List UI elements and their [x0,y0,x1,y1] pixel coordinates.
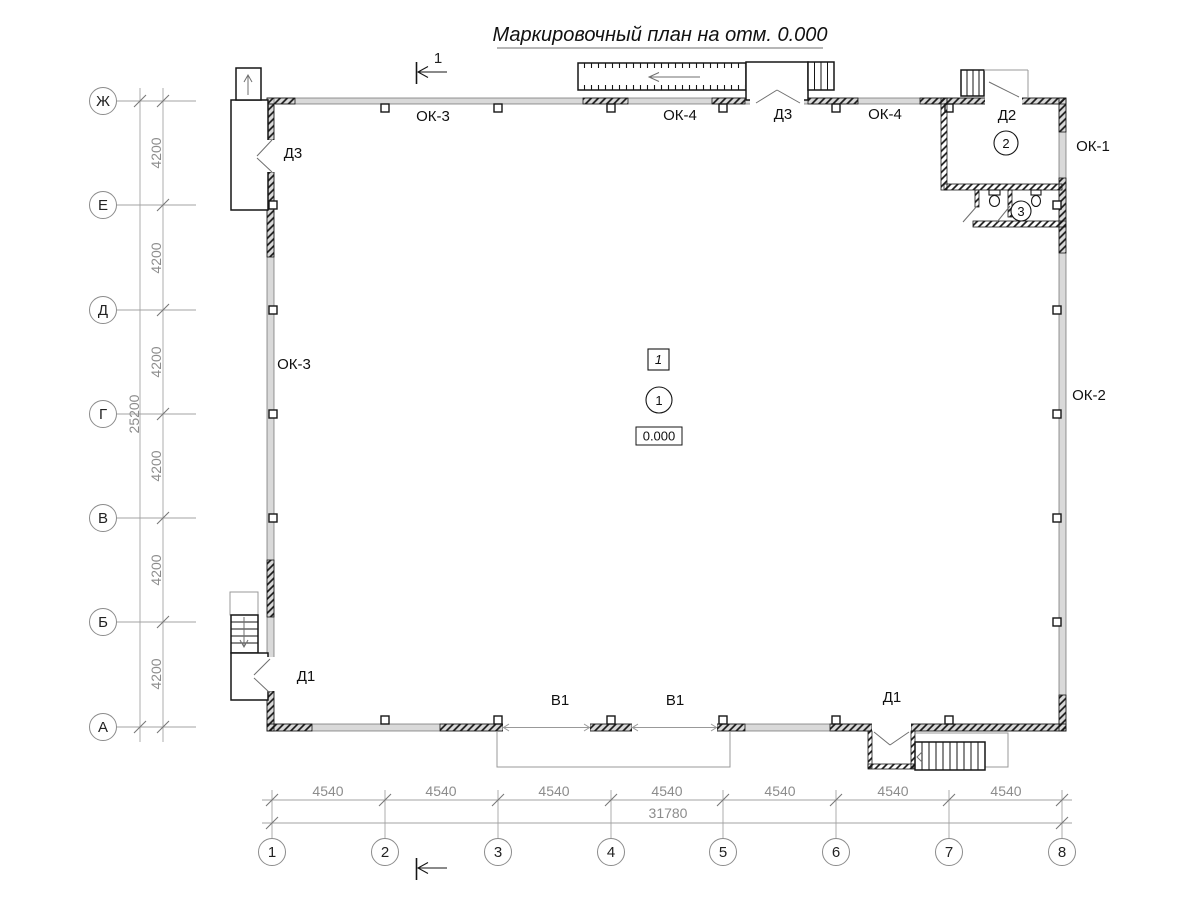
door-label-d3-top: Д3 [774,106,793,123]
element-labels: ОК-3 ОК-4 Д3 ОК-4 Д2 ОК-1 ОК-2 ОК-3 Д3 Д… [277,106,1110,709]
window-label-ok3-left: ОК-3 [277,356,311,373]
dim-col-segment: 4540 [764,783,795,799]
wall-hatched-segments [267,98,1066,731]
section-mark-top: 1 [417,50,448,84]
loading-dock [578,63,746,90]
dim-col-total: 31780 [649,805,688,821]
axis-col-label: 8 [1058,844,1066,861]
door-label-d2: Д2 [998,107,1017,124]
floor-plan-drawing: Маркировочный план на отм. 0.000 Ж Е Д Г… [0,0,1200,900]
drawing-title: Маркировочный план на отм. 0.000 [492,24,827,48]
room-number-sanitary: 3 [1017,204,1024,219]
axis-row-label: А [98,719,108,736]
axis-col-label: 2 [381,844,389,861]
door-swing [874,732,890,745]
door-label-d3-left: Д3 [284,145,303,162]
elevation-value: 0.000 [643,429,676,444]
door-label-d1-bottom: Д1 [883,689,902,706]
window-label-ok1: ОК-1 [1076,138,1110,155]
room-number-hall: 1 [655,393,662,408]
dim-row-total: 25200 [126,394,142,433]
axis-row-label: Г [99,406,107,423]
room-bubbles: 2 3 [994,131,1031,221]
axis-col-label: 7 [945,844,953,861]
dim-col-segment: 4540 [651,783,682,799]
title-text: Маркировочный план на отм. 0.000 [492,24,827,46]
dim-col-segment: 4540 [312,783,343,799]
door-swing [890,732,909,745]
axis-row-label: Б [98,614,108,631]
dim-col-segment: 4540 [877,783,908,799]
window-label-ok4-left: ОК-4 [663,107,697,124]
toilet-icon [1031,190,1041,195]
door-label-d1-left: Д1 [297,668,316,685]
hall-marks: 1 1 0.000 [636,349,682,445]
section-mark-bottom [417,858,448,880]
window-label-ok3-top: ОК-3 [416,108,450,125]
axis-col-label: 4 [607,844,615,861]
axis-col-label: 6 [832,844,840,861]
axis-grid-bottom: 1 2 3 4 5 6 7 8 [259,790,1076,866]
gate-label-v1-left: В1 [551,692,569,709]
dim-row-segment: 4200 [148,450,164,481]
axis-col-label: 1 [268,844,276,861]
section-number: 1 [434,50,442,67]
dimensions-left: 4200 4200 4200 4200 4200 4200 25200 [126,88,169,742]
axis-col-label: 5 [719,844,727,861]
gate-apron-outline [497,731,730,767]
exterior-walls [267,98,1066,731]
dim-row-segment: 4200 [148,242,164,273]
dim-row-segment: 4200 [148,554,164,585]
column-markers [269,104,1061,724]
door-swing [963,206,977,222]
toilet-icon [989,190,1000,195]
top-left-annex [231,68,275,210]
axis-grid-left: Ж Е Д Г В Б А [90,88,197,741]
dimensions-bottom: 4540 4540 4540 4540 4540 4540 4540 31780 [262,783,1072,829]
axis-col-label: 3 [494,844,502,861]
axis-row-label: Д [98,302,108,319]
dim-row-segment: 4200 [148,658,164,689]
window-label-ok2: ОК-2 [1072,387,1106,404]
room-number-vestibule: 2 [1002,136,1009,151]
dim-row-segment: 4200 [148,346,164,377]
axis-row-label: Е [98,197,108,214]
door-swing [989,82,1019,97]
plan-node-number: 1 [655,352,662,367]
dim-col-segment: 4540 [538,783,569,799]
gate-label-v1-right: В1 [666,692,684,709]
dim-col-segment: 4540 [425,783,456,799]
axis-row-label: Ж [96,93,110,110]
axis-row-label: В [98,510,108,527]
dim-row-segment: 4200 [148,137,164,168]
window-label-ok4-right: ОК-4 [868,106,902,123]
dim-col-segment: 4540 [990,783,1021,799]
